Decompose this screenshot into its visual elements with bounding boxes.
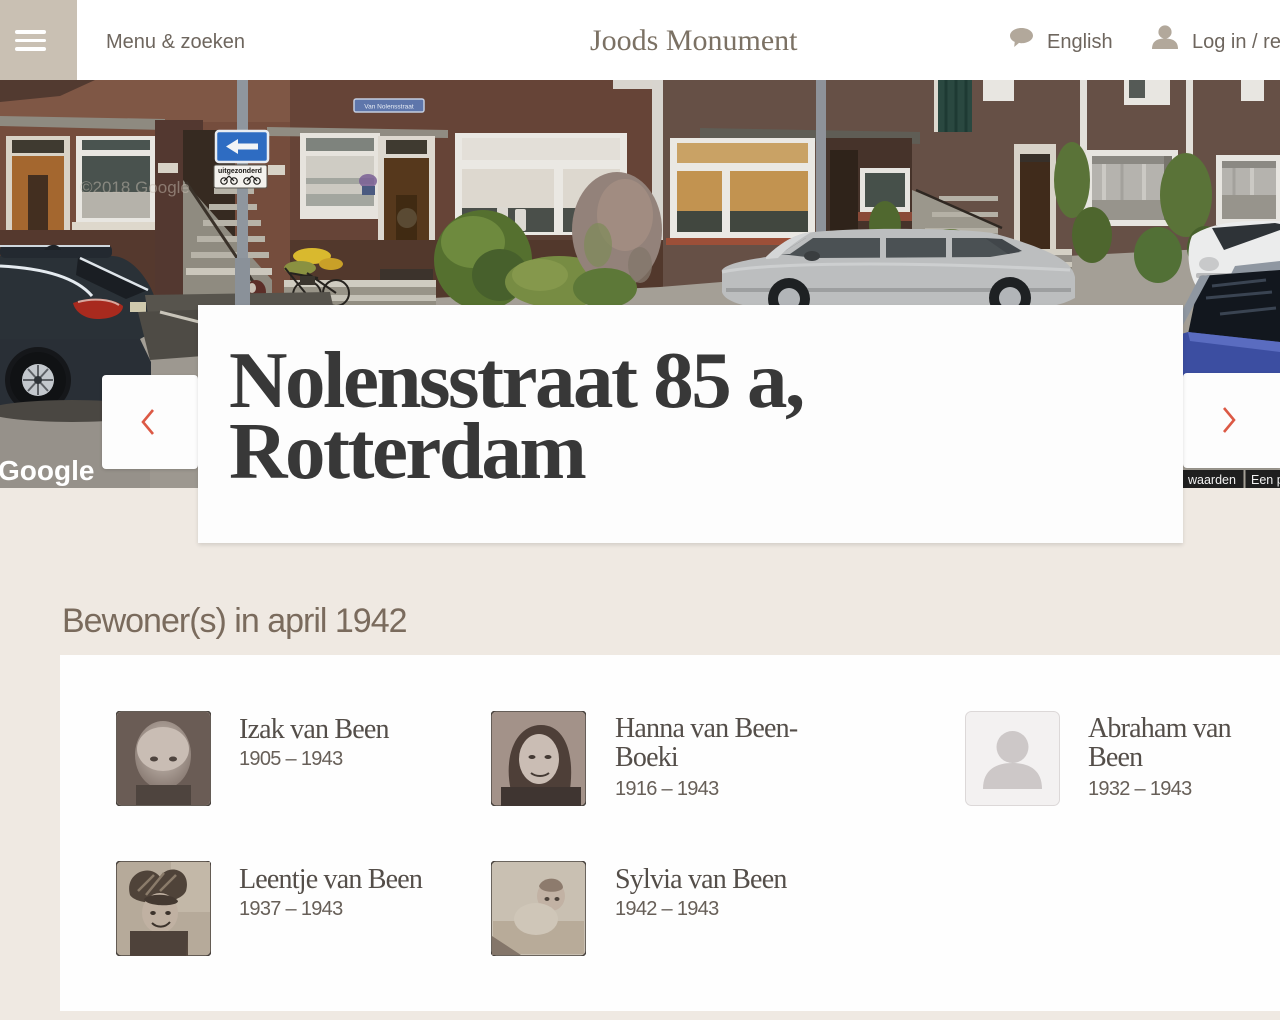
svg-text:Google: Google (0, 455, 94, 486)
svg-text:©2018 Google: ©2018 Google (80, 178, 190, 197)
svg-text:uitgezonderd: uitgezonderd (218, 168, 262, 175)
svg-text:Van Nolensstraat: Van Nolensstraat (364, 104, 414, 111)
svg-text:Een p: Een p (1251, 473, 1280, 487)
svg-text:waarden: waarden (1187, 473, 1236, 487)
